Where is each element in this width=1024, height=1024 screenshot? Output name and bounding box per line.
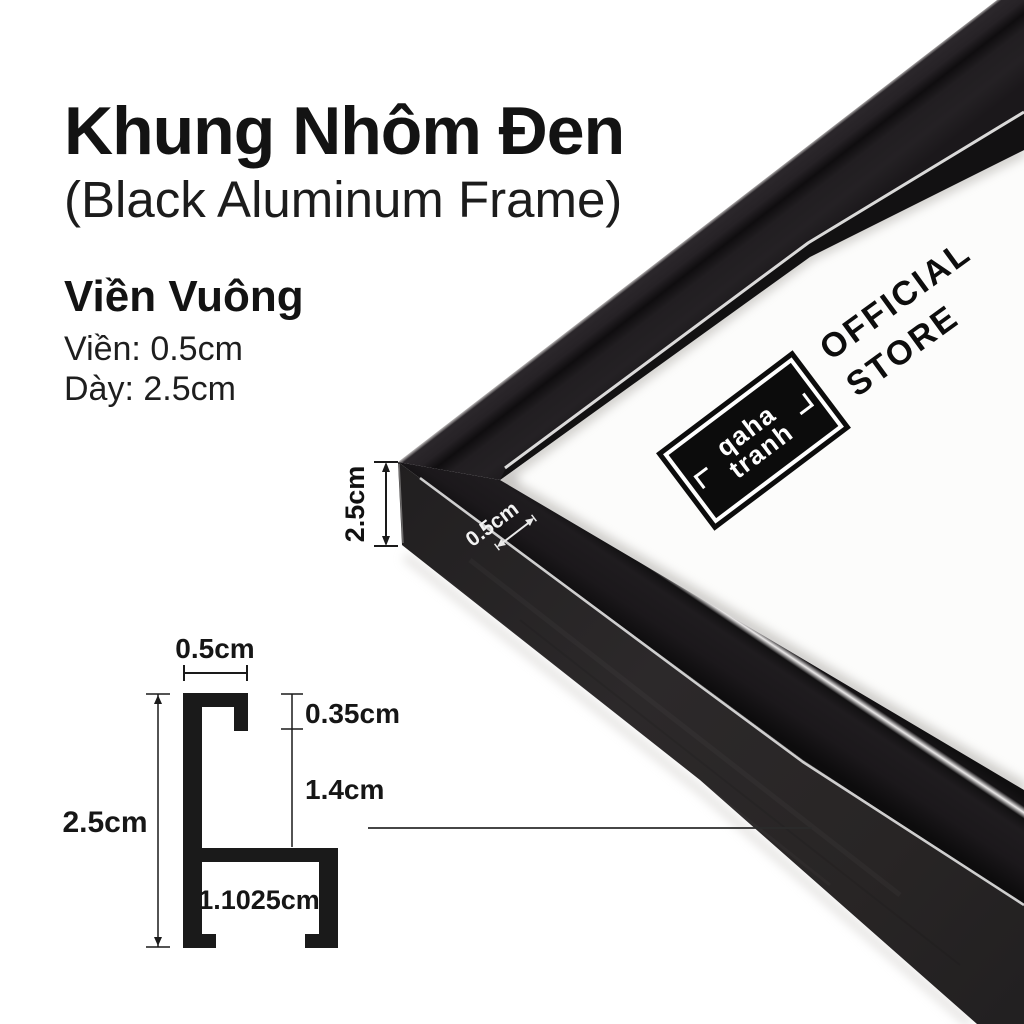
stamp-corner-bracket-icon: [693, 466, 715, 488]
diagram-total-height-label: 2.5cm: [62, 806, 147, 839]
diagram-base-width-label: 1.1025cm: [198, 885, 320, 915]
page-title: Khung Nhôm Đen: [64, 94, 624, 169]
depth-annotation-label: 2.5cm: [340, 466, 370, 543]
diagram-inner-height-label: 1.4cm: [305, 774, 384, 805]
spec-border-width: Viền: 0.5cm: [64, 330, 243, 369]
stamp-corner-bracket-icon: [791, 392, 813, 414]
page-subtitle-english: (Black Aluminum Frame): [64, 170, 622, 229]
spec-depth: Dày: 2.5cm: [64, 370, 236, 409]
diagram-top-width-label: 0.5cm: [175, 633, 254, 664]
spec-heading: Viền Vuông: [64, 272, 304, 322]
diagram-lip-depth-label: 0.35cm: [305, 698, 400, 729]
product-graphic: 2.5cm 0.5cm: [0, 0, 1024, 1024]
